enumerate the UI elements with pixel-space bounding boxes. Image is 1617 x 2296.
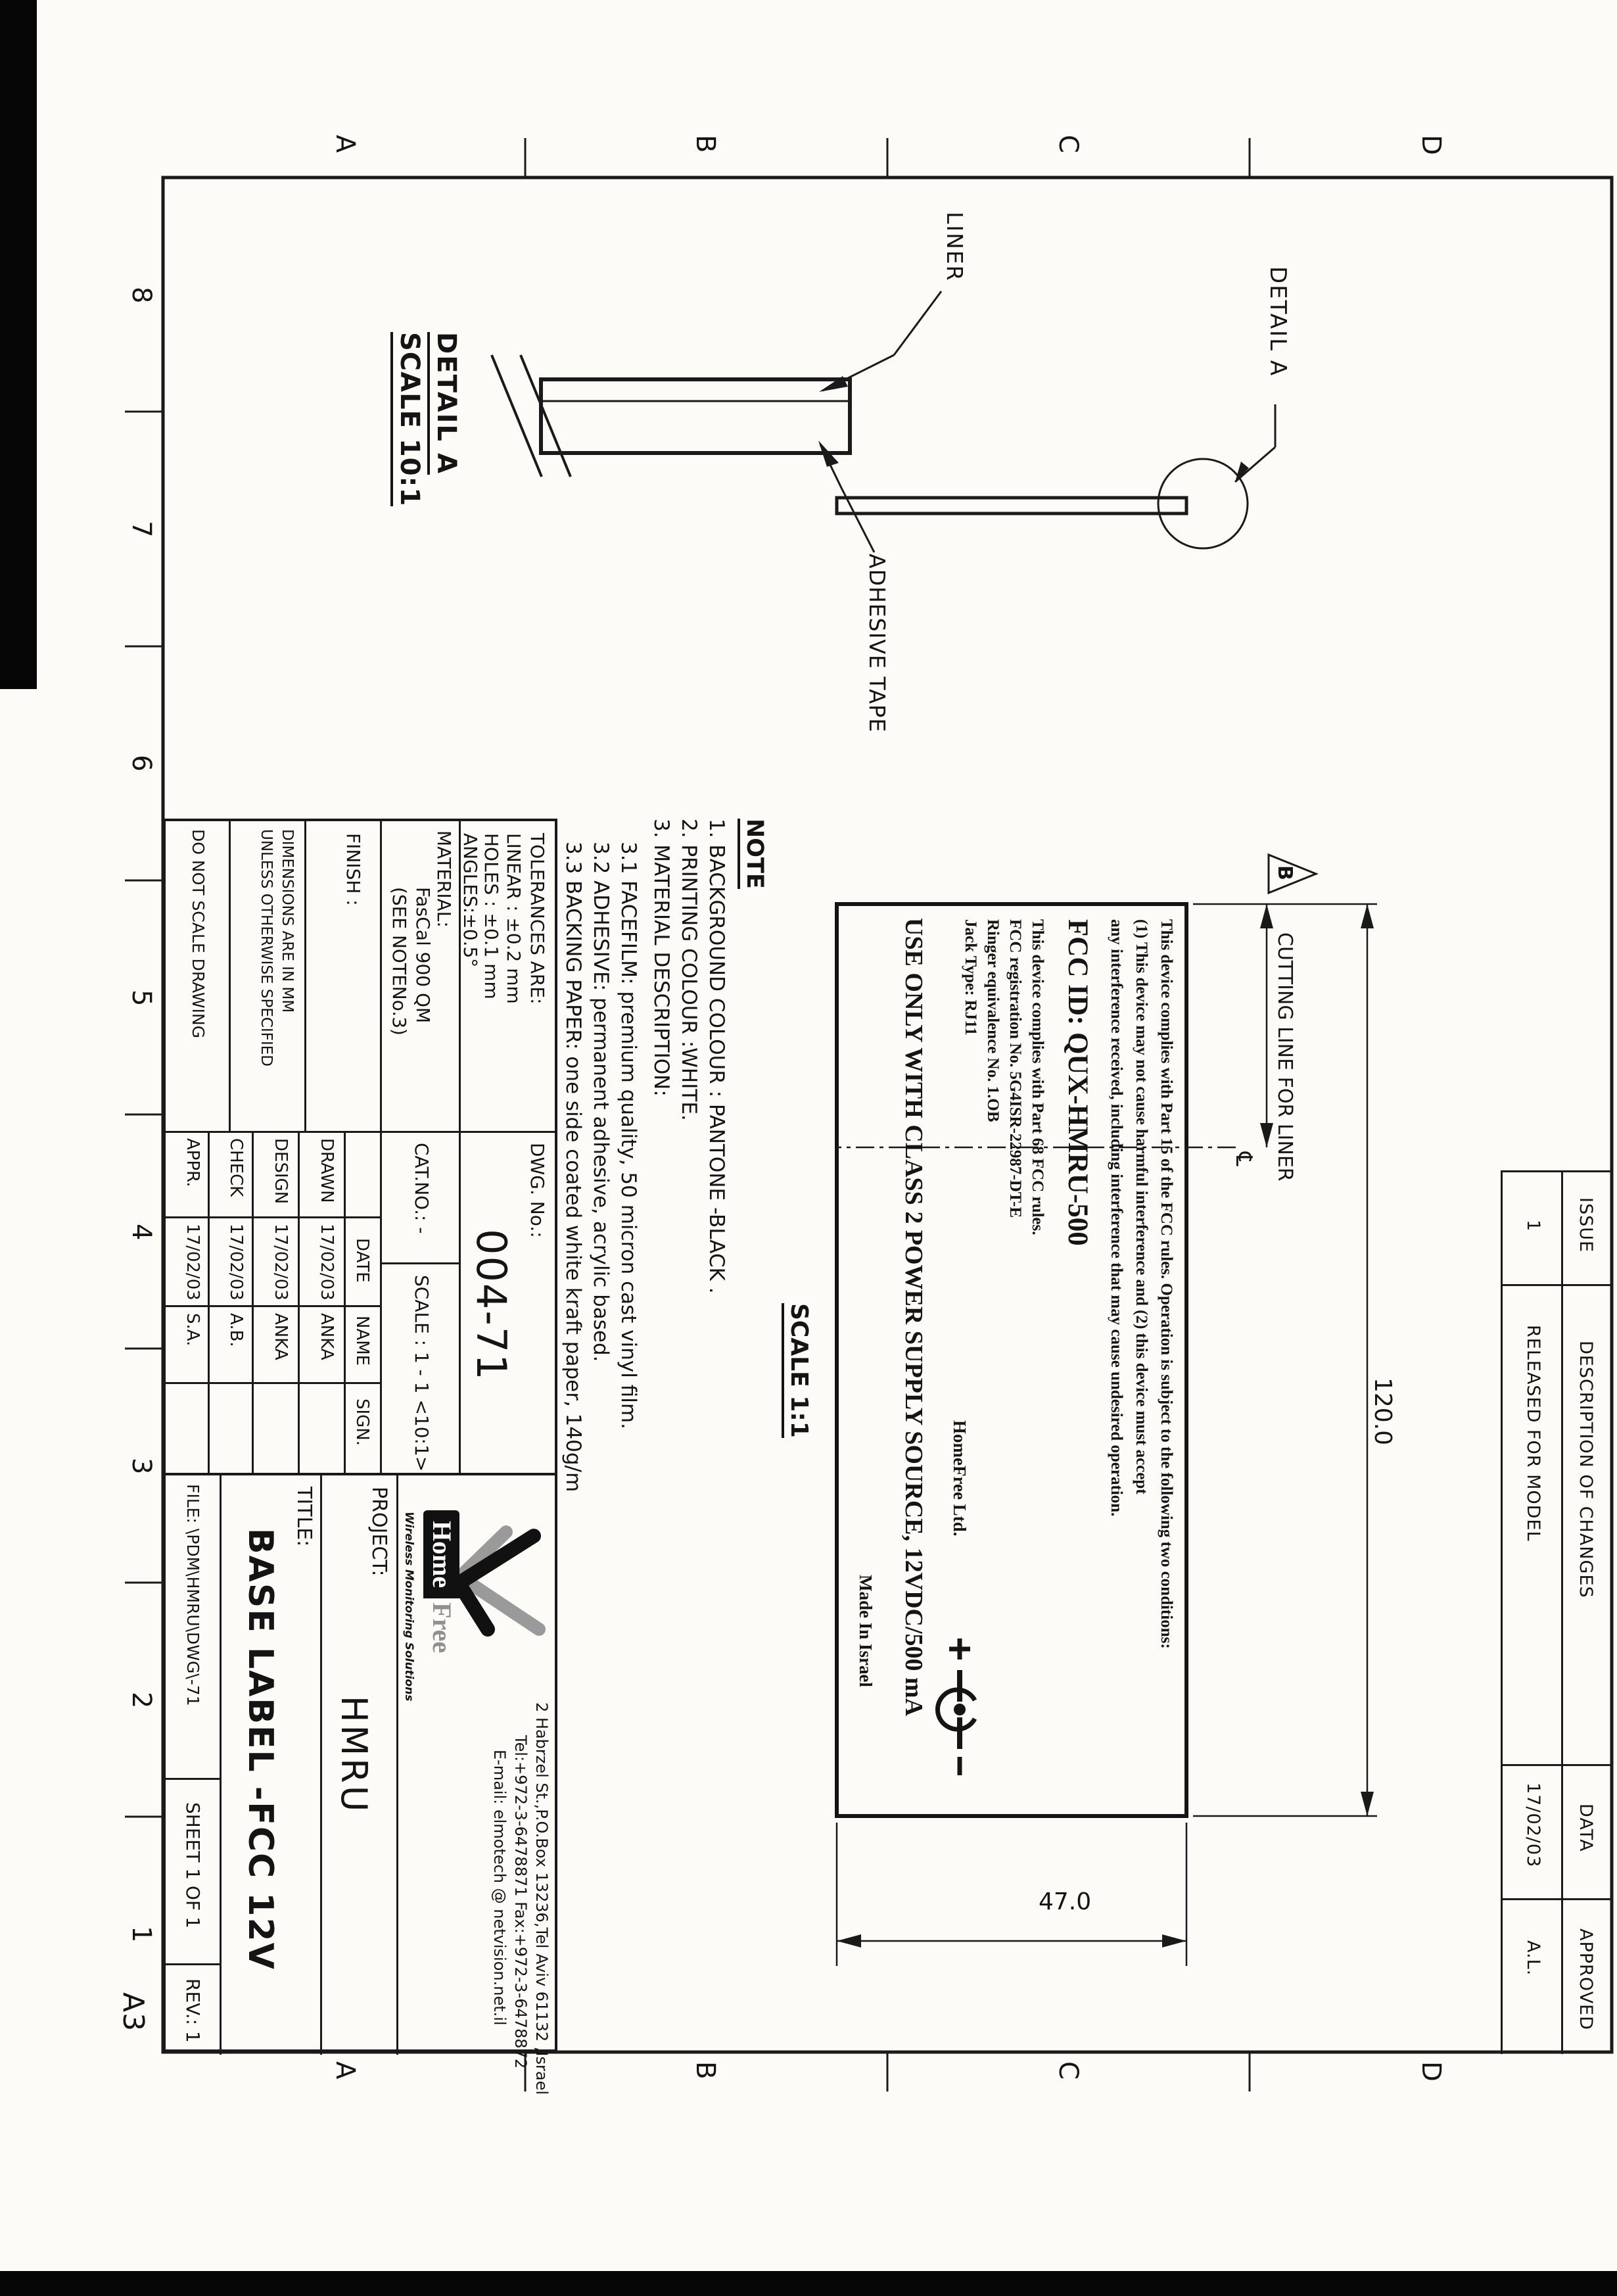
centerline-symbol: ℄ [1230, 1152, 1257, 1166]
detail-callout-leader [1235, 404, 1275, 482]
sig-row-name: S.A. [183, 1313, 202, 1346]
approved-header: APPROVED [1576, 1928, 1596, 2030]
dim-47 [837, 1823, 1186, 1966]
scan-edge-black-strip-bottom [0, 2271, 1617, 2296]
company-address-line: E-mail: elmotech @ netvision.net.il [490, 1750, 509, 2026]
zone-number: 1 [126, 1926, 156, 1943]
sig-row-date: 17/02/03 [317, 1224, 337, 1301]
material-note: (SEE NOTENo.3) [388, 887, 410, 1036]
approved-value: A.L. [1523, 1940, 1543, 1976]
dimensions-note-line: DIMENSIONS ARE IN MM [279, 829, 296, 1013]
fcc-p15-line: any interference received, including int… [1107, 919, 1125, 1516]
note-line: 2. PRINTING COLOUR :WHITE. [677, 819, 701, 1121]
break-line [492, 355, 542, 477]
zone-letter: D [1416, 135, 1446, 156]
detail-strip [492, 355, 850, 477]
sig-row-date: 17/02/03 [271, 1224, 291, 1301]
note-title: NOTE [741, 819, 768, 889]
fcc-p68-line: FCC registration No. 5G4ISR-22987-DT-E [1006, 919, 1024, 1218]
dwg-no-value: 004-71 [467, 1229, 515, 1381]
tolerances-line: HOLES : ±0.1 mm [480, 833, 502, 999]
zone-number: 8 [126, 287, 156, 304]
file-path: FILE: \PDM\HMRU\DWG\-71 [183, 1484, 202, 1706]
manufacturer-text: HomeFree Ltd. [949, 1420, 970, 1536]
note-line: 3. MATERIAL DESCRIPTION: [649, 819, 673, 1097]
date-value: 17/02/03 [1523, 1782, 1543, 1867]
scanned-drawing-page: { "sheet": { "format": "A3", "zone_lette… [0, 0, 1617, 2296]
zone-letter: B [690, 135, 720, 153]
sig-header-name: NAME [352, 1316, 372, 1366]
zone-number: 3 [126, 1458, 156, 1475]
fcc-p68-line: Jack Type: RJ11 [961, 919, 979, 1036]
do-not-scale-note: DO NOT SCALE DRAWING [189, 829, 208, 1038]
fcc-p15-line: (1) This device may not cause harmful in… [1132, 919, 1150, 1495]
detail-view-scale: SCALE 10:1 [394, 332, 425, 506]
drawing-sheet: D C B A D C B A 8 7 6 5 4 3 2 1 A3 ISSUE… [0, 0, 1617, 2296]
zone-number: 5 [126, 990, 156, 1007]
scale-1-1-note: SCALE 1:1 [785, 1303, 812, 1438]
company-address-line: 2 Habrzel St.,P.O.Box 13236,Tel Aviv 611… [532, 1702, 551, 2095]
tolerances-line: TOLERANCES ARE: [527, 833, 548, 1005]
note-line: 3.1 FACEFILM: premium quality, 50 micron… [617, 842, 640, 1429]
zone-letter: D [1416, 2061, 1446, 2082]
revision-number: REV.: 1 [182, 1978, 204, 2043]
description-value: RELEASED FOR MODEL [1523, 1325, 1543, 1542]
sig-header-date: DATE [352, 1238, 372, 1283]
dim-120-text: 120.0 [1369, 1377, 1396, 1445]
dim-cutting-line [1260, 904, 1273, 1147]
sheet-number: SHEET 1 OF 1 [182, 1802, 204, 1928]
zone-number: 7 [126, 521, 156, 538]
tolerances-line: LINEAR : ±0.2 mm [503, 833, 525, 1004]
sig-row-name: A.B. [226, 1313, 246, 1347]
sig-row-label: APPR. [183, 1138, 202, 1187]
cat-no-label: CAT.NO.: - [411, 1143, 433, 1233]
fcc-p15-line: This device complies with Part 15 of the… [1157, 919, 1175, 1649]
zone-letter: B [690, 2061, 720, 2080]
company-address-line: Tel:+972-3-6478871 Fax:+972-3-6478872 [511, 1735, 530, 2069]
title-block: TOLERANCES ARE: LINEAR : ±0.2 mm HOLES :… [163, 819, 557, 2052]
description-header: DESCRIPTION OF CHANGES [1576, 1341, 1596, 1598]
zone-letter: C [1053, 135, 1083, 154]
sig-row-name: ANKA [271, 1313, 291, 1360]
sig-row-name: ANKA [317, 1313, 337, 1360]
dwg-no-label: DWG. No.: [527, 1143, 548, 1238]
sig-row-label: DESIGN [271, 1138, 291, 1204]
cutting-line-label: CUTTING LINE FOR LINER [1273, 932, 1296, 1182]
zone-number: 4 [126, 1224, 156, 1241]
homefree-tagline: Wireless Monitoring Solutions [402, 1512, 415, 1701]
material-label: MATERIAL: [433, 830, 455, 928]
homefree-wordmark: HomeFree [427, 1510, 457, 1653]
fcc-id-text: FCC ID: QUX-HMRU-500 [1062, 919, 1094, 1246]
revision-table: ISSUE DESCRIPTION OF CHANGES DATA APPROV… [1501, 1170, 1612, 2054]
b-flag-text: B [1273, 865, 1296, 880]
scan-edge-black-strip-left [0, 0, 37, 689]
tolerances-line: ANGLES:±0.5° [459, 833, 481, 967]
issue-value: 1 [1523, 1220, 1543, 1232]
adhesive-tape-label: ADHESIVE TAPE [864, 554, 890, 732]
project-label: PROJECT: [367, 1487, 390, 1576]
zone-letter: C [1053, 2061, 1083, 2080]
project-value: HMRU [333, 1696, 375, 1814]
zone-number: 6 [126, 755, 156, 772]
finish-label: FINISH : [342, 833, 364, 906]
issue-header: ISSUE [1576, 1197, 1596, 1253]
label-edge-view [837, 498, 1186, 514]
title-label: TITLE: [293, 1487, 316, 1546]
note-line: 3.2 ADHESIVE: permanent adhesive, acryli… [589, 842, 613, 1362]
dimensions-note-line: UNLESS OTHERWISE SPECIFIED [258, 829, 275, 1066]
detail-view-title: DETAIL A [431, 332, 461, 475]
note-line: 1. BACKGROUND COLOUR : PANTONE -BLACK . [705, 819, 728, 1294]
homefree-free-text: Free [427, 1598, 457, 1653]
fcc-p68-line: Ringer equivalence No. 1.OB [983, 919, 1002, 1122]
date-header: DATA [1576, 1804, 1596, 1852]
zone-letter: A [330, 135, 360, 153]
liner-label: LINER [942, 212, 968, 282]
sig-row-label: DRAWN [317, 1138, 337, 1203]
scale-label: SCALE : 1 - 1 <10:1> [411, 1275, 433, 1471]
homefree-home-text: Home [423, 1510, 459, 1598]
sheet-format: A3 [116, 1992, 150, 2032]
sig-header-sign: SIGN. [352, 1399, 372, 1446]
zone-letter: A [330, 2061, 360, 2080]
sig-row-date: 17/02/03 [183, 1224, 202, 1301]
material-value: FasCal 900 QM [412, 887, 434, 1023]
sig-row-date: 17/02/03 [226, 1224, 246, 1301]
made-in-text: Made In Israel [855, 1575, 876, 1687]
dim-47-text: 47.0 [1039, 1888, 1091, 1915]
note-line: 3.3 BACKING PAPER: one side coated white… [561, 842, 585, 1492]
detail-callout-label: DETAIL A [1265, 266, 1291, 377]
sig-row-label: CHECK [226, 1138, 246, 1197]
fcc-p68-line: This device complies with Part 68 FCC ru… [1028, 919, 1046, 1235]
power-supply-text: USE ONLY WITH CLASS 2 POWER SUPPLY SOURC… [899, 918, 928, 1716]
zone-number: 2 [126, 1692, 156, 1709]
title-value: BASE LABEL -FCC 12V [241, 1528, 280, 1971]
liner-leader [819, 291, 941, 392]
